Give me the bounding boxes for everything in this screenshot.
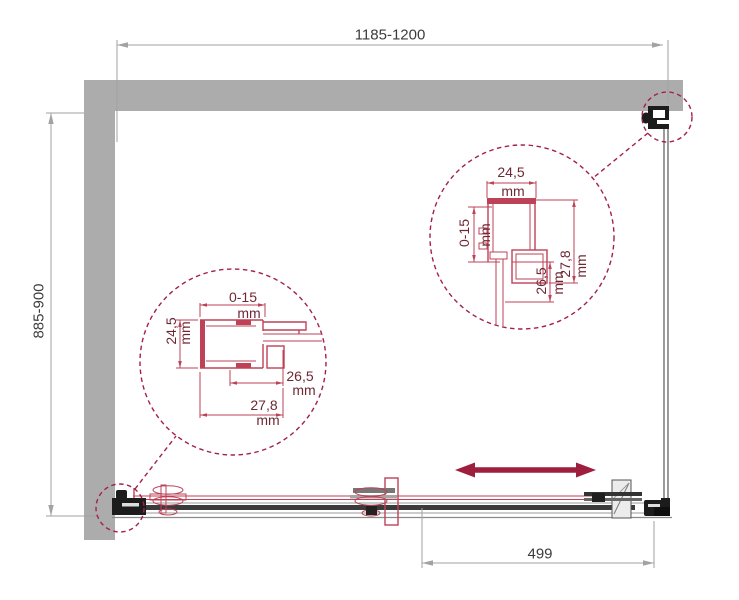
detail-left-adjustment-value: 0-15 — [229, 290, 257, 304]
detail-right-adjustment-unit: mm — [478, 223, 492, 246]
slide-direction-arrow — [455, 463, 596, 478]
detail-right-adjustment-value: 0-15 — [457, 219, 471, 247]
detail-left-inner-value: 26,5 — [286, 369, 313, 383]
corner-fitting-bottom-left — [112, 490, 146, 515]
drawing-canvas — [0, 0, 739, 600]
leader-line-right — [593, 133, 648, 178]
detail-right-width-unit: mm — [501, 184, 524, 198]
leader-line-left — [135, 436, 176, 489]
dim-label-door-offset: 499 — [527, 547, 552, 562]
detail-right-width-value: 24,5 — [497, 165, 524, 179]
corner-fitting-bottom-right — [644, 498, 670, 516]
detail-left-depth-unit: mm — [178, 321, 192, 344]
roller-right — [584, 480, 642, 518]
detail-left-outer-unit: mm — [256, 413, 279, 427]
wall-top — [84, 80, 683, 111]
dim-label-overall-depth: 885-900 — [32, 283, 47, 338]
detail-left-inner-unit: mm — [292, 383, 315, 397]
wall-left — [84, 80, 115, 540]
shower-enclosure-technical-drawing: 1185-1200 885-900 499 0-15 mm 24,5 mm 26… — [0, 0, 739, 600]
detail-right-outer-unit: mm — [574, 254, 588, 277]
detail-right-inner-value: 26,5 — [534, 267, 548, 294]
detail-left-adjustment-unit: mm — [237, 306, 260, 320]
dim-label-overall-width: 1185-1200 — [355, 28, 426, 43]
detail-left-outer-value: 27,8 — [250, 398, 277, 412]
detail-left-depth-value: 24,5 — [164, 317, 178, 344]
side-glass-panel — [664, 128, 668, 508]
roller-left — [150, 485, 186, 515]
detail-right-outer-value: 27,8 — [558, 250, 572, 277]
